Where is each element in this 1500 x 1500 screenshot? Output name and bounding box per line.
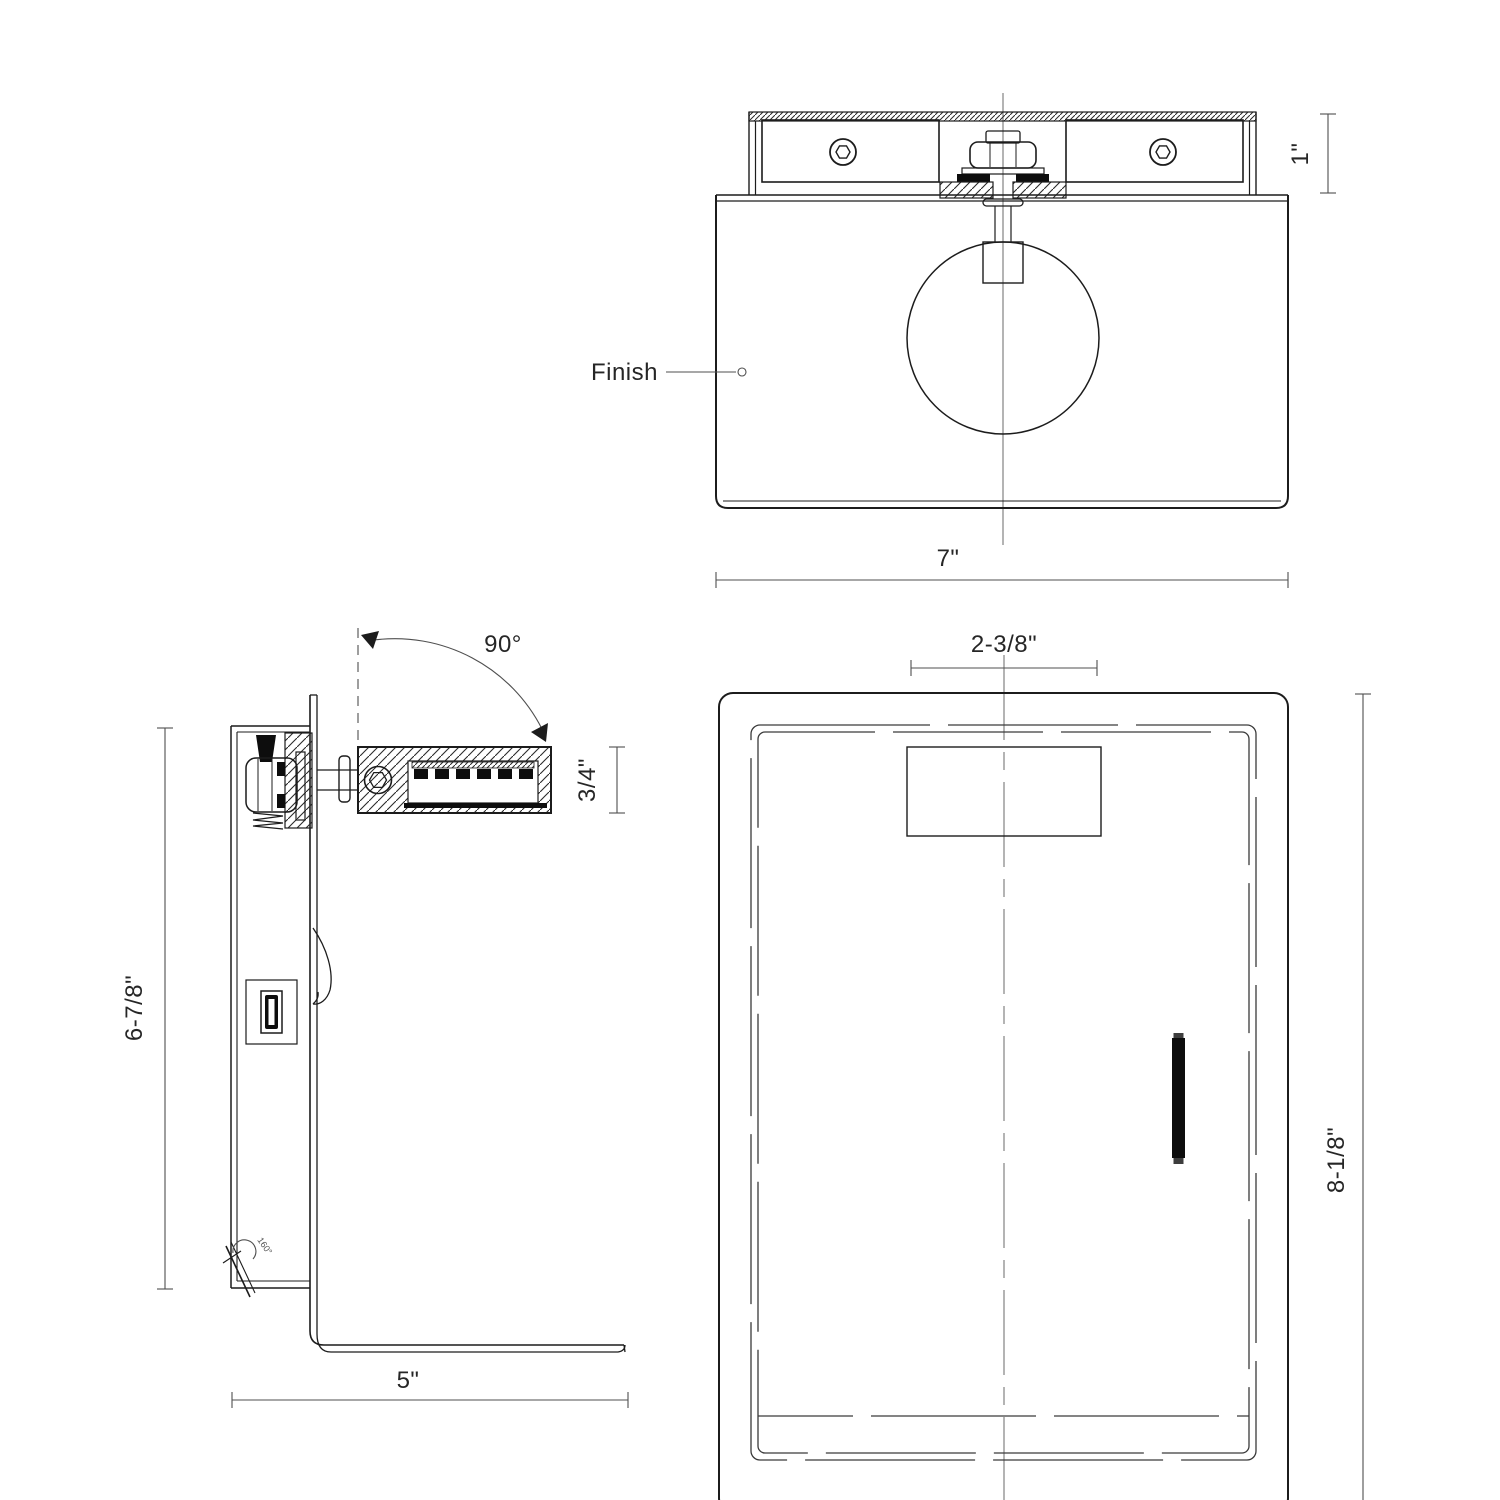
rear-view: 2-3/8" 8-1/8"	[719, 631, 1371, 1500]
arc-arrow-end	[531, 723, 548, 742]
mount-plate-left	[762, 120, 939, 182]
drawing-svg: Finish 7" 1"	[0, 0, 1500, 1500]
finish-label: Finish	[591, 359, 658, 386]
finish-callout: Finish	[591, 359, 746, 386]
latch-angle-label: 160°	[255, 1235, 274, 1256]
screw-left	[830, 139, 856, 165]
led-strip	[412, 762, 534, 768]
dim-rear-height-label: 8-1/8"	[1323, 1127, 1350, 1193]
side-view: 90° 3/4"	[121, 628, 628, 1408]
dim-side-depth: 5"	[232, 1367, 628, 1408]
dim-rear-height: 8-1/8"	[1323, 694, 1371, 1500]
switch-bar	[1172, 1033, 1185, 1164]
spec-sheet: Finish 7" 1"	[0, 0, 1500, 1500]
front-view: Finish 7" 1"	[591, 93, 1336, 588]
dim-side-height: 6-7/8"	[121, 728, 173, 1289]
diffuser-lens	[404, 803, 547, 808]
usb-port	[246, 980, 297, 1044]
mount-plate-right	[1066, 120, 1243, 182]
arm-section	[358, 747, 551, 813]
dim-rotation-label: 90°	[484, 631, 522, 658]
mount-bolt-section	[246, 733, 312, 829]
rotation-annotation: 90°	[358, 628, 548, 746]
dim-front-width-label: 7"	[937, 545, 960, 572]
dim-side-height-label: 6-7/8"	[121, 975, 148, 1041]
screw-right	[1150, 139, 1176, 165]
dim-side-depth-label: 5"	[397, 1367, 420, 1394]
pivot-washer	[339, 756, 350, 802]
dim-front-width: 7"	[716, 545, 1288, 588]
dim-bracket-height: 1"	[1287, 114, 1336, 193]
dim-arm-thickness-label: 3/4"	[574, 758, 601, 802]
spring-clip	[313, 928, 331, 1004]
dim-bracket-height-label: 1"	[1287, 143, 1314, 166]
dim-rear-mount-spacing-label: 2-3/8"	[971, 631, 1037, 658]
dim-arm-thickness: 3/4"	[574, 747, 625, 813]
